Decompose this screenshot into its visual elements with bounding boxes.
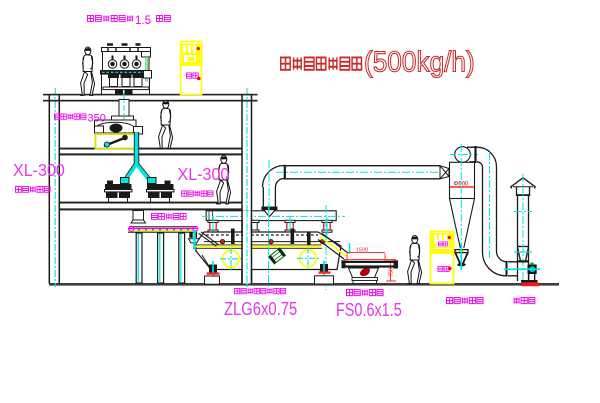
svg-text:1500: 1500: [356, 248, 368, 254]
svg-text:750: 750: [389, 268, 395, 277]
svg-text:350: 350: [88, 113, 106, 125]
svg-text:(500kg/h): (500kg/h): [364, 45, 475, 77]
svg-text:XL-300: XL-300: [178, 164, 230, 184]
svg-text:ZLG6x0.75: ZLG6x0.75: [224, 298, 297, 319]
svg-text:1.5: 1.5: [135, 15, 151, 27]
svg-text:XL-300: XL-300: [13, 160, 65, 180]
svg-text:FS0.6x1.5: FS0.6x1.5: [336, 299, 402, 320]
